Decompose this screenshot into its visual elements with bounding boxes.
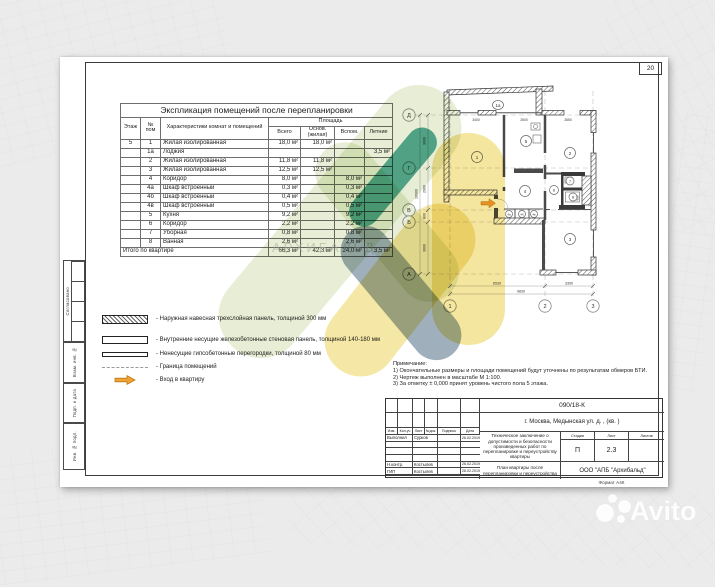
cell-aux bbox=[335, 148, 365, 157]
dimension-labels: 3600 2900 800 3600 10900 6530 3300 9830 … bbox=[415, 118, 574, 294]
cell-name: Кухня bbox=[161, 211, 269, 220]
cell-num: 4б bbox=[141, 193, 161, 202]
signature-row bbox=[386, 448, 480, 455]
cell-main: 18,0 м² bbox=[301, 139, 335, 148]
sig-name bbox=[413, 442, 438, 448]
table-row: 4 Коридор 8,0 м² 8,0 м² bbox=[121, 175, 393, 184]
legend-label: - Вход в квартиру bbox=[156, 377, 204, 383]
cell-total: 9,2 м² bbox=[269, 211, 301, 220]
avito-dot bbox=[617, 515, 625, 523]
svg-text:3400: 3400 bbox=[472, 118, 480, 122]
cell-aux: 9,2 м² bbox=[335, 211, 365, 220]
sig-role bbox=[386, 455, 413, 461]
tb-col-izm: Изм. bbox=[386, 428, 398, 435]
cell-num: 4 bbox=[141, 175, 161, 184]
cell-total: 18,0 м² bbox=[269, 139, 301, 148]
svg-text:6530: 6530 bbox=[493, 282, 501, 286]
cell-name: Шкаф встроенный bbox=[161, 202, 269, 211]
tb-drawing-title: План квартиры после перепланировки и пер… bbox=[480, 462, 561, 479]
legend-item-partition: - Ненесущие гипсобетонные перегородки, т… bbox=[100, 348, 321, 360]
cell-total: 12,5 м² bbox=[269, 166, 301, 175]
tb-stage-value: П bbox=[561, 440, 595, 462]
cell-floor bbox=[121, 175, 141, 184]
cell-total: 11,8 м² bbox=[269, 157, 301, 166]
cell-num: 5 bbox=[141, 211, 161, 220]
cell-name: Шкаф встроенный bbox=[161, 184, 269, 193]
legend-label: - Внутренние несущие железобетонные стен… bbox=[156, 337, 380, 343]
stamp-approved-grid bbox=[71, 261, 84, 341]
sig-role: Н.контр. bbox=[386, 462, 413, 468]
note-line: 3) За отметку ± 0,000 принят уровень чис… bbox=[393, 381, 657, 388]
signature-rows: Выполнил Сурков 26.02.2019 bbox=[386, 435, 480, 475]
cell-aux: 2,6 м² bbox=[335, 238, 365, 247]
cell-aux: 0,8 м² bbox=[335, 229, 365, 238]
table-row: 5 1 Жилая изолированная 18,0 м² 18,0 м² bbox=[121, 139, 393, 148]
sig-role: ГИП bbox=[386, 468, 413, 474]
bearing-walls bbox=[494, 115, 585, 270]
sig-role bbox=[386, 442, 413, 448]
cell-total bbox=[269, 148, 301, 157]
table-row: 1а Лоджия 3,5 м² bbox=[121, 148, 393, 157]
sig-date bbox=[461, 442, 480, 448]
svg-text:А: А bbox=[407, 272, 411, 278]
cell-main bbox=[301, 184, 335, 193]
total-main: 42,3 м² bbox=[301, 247, 335, 256]
legend-item-bearing-panel: - Внутренние несущие железобетонные стен… bbox=[100, 334, 380, 346]
avito-logo: Avito bbox=[596, 492, 715, 537]
svg-text:4б: 4б bbox=[520, 212, 524, 216]
tb-sheet-label: Лист bbox=[595, 432, 629, 440]
notes: Примечание: 1) Окончательные размеры и п… bbox=[393, 361, 657, 388]
cell-main bbox=[301, 193, 335, 202]
stamp-approved: Согласовано bbox=[63, 260, 85, 342]
cell-main bbox=[301, 220, 335, 229]
svg-text:9830: 9830 bbox=[517, 290, 525, 294]
legend-label: - Ненесущие гипсобетонные перегородки, т… bbox=[156, 351, 321, 357]
stamp-vzam: Взам. инв. № bbox=[63, 342, 85, 383]
cell-num: 7 bbox=[141, 229, 161, 238]
cell-floor bbox=[121, 220, 141, 229]
tb-doc-code: 090/18-К bbox=[480, 399, 664, 413]
sig-signature bbox=[438, 455, 461, 461]
cell-main bbox=[301, 238, 335, 247]
svg-text:Б: Б bbox=[407, 220, 411, 226]
cell-aux: 8,0 м² bbox=[335, 175, 365, 184]
table-row: 2 Жилая изолированная 11,8 м² 11,8 м² bbox=[121, 157, 393, 166]
cell-num: 1а bbox=[141, 148, 161, 157]
cell-name: Коридор bbox=[161, 175, 269, 184]
total-aux: 24,0 м² bbox=[335, 247, 365, 256]
tb-sheets-label: Листов bbox=[629, 432, 664, 440]
avito-dot bbox=[618, 500, 631, 513]
sig-signature bbox=[438, 448, 461, 454]
col-main: Основ. (жилая) bbox=[301, 127, 335, 140]
table-total-row: Итого по квартире 66,3 м² 42,3 м² 24,0 м… bbox=[121, 247, 393, 256]
sig-date bbox=[461, 455, 480, 461]
cell-total: 0,3 м² bbox=[269, 184, 301, 193]
col-room-no: № пом bbox=[141, 118, 161, 140]
total-label: Итого по квартире bbox=[121, 247, 269, 256]
tb-col-date: Дата bbox=[461, 428, 480, 435]
cell-name: Уборная bbox=[161, 229, 269, 238]
stamp-podp: Подп. и дата bbox=[63, 383, 85, 423]
legend-item-boundary: - Граница помещений bbox=[100, 361, 217, 373]
explication-title: Экспликация помещений после перепланиров… bbox=[121, 104, 393, 118]
format-note: Формат А4К bbox=[560, 480, 663, 485]
cell-total: 0,8 м² bbox=[269, 229, 301, 238]
tb-col-list: Лист bbox=[413, 428, 425, 435]
cell-aux: 0,4 м² bbox=[335, 193, 365, 202]
total-total: 66,3 м² bbox=[269, 247, 301, 256]
svg-text:8: 8 bbox=[572, 196, 574, 200]
cell-num: 8 bbox=[141, 238, 161, 247]
cell-total: 0,5 м² bbox=[269, 202, 301, 211]
table-row: 5 Кухня 9,2 м² 9,2 м² bbox=[121, 211, 393, 220]
sig-role: Выполнил bbox=[386, 435, 413, 441]
table-row: 7 Уборная 0,8 м² 0,8 м² bbox=[121, 229, 393, 238]
stamp-inv: Инв. № подл. bbox=[63, 423, 85, 470]
cell-num: 4в bbox=[141, 202, 161, 211]
cell-name: Лоджия bbox=[161, 148, 269, 157]
stamp-vzam-label: Взам. инв. № bbox=[72, 347, 77, 377]
sig-date: 26.02.2019 bbox=[461, 435, 480, 441]
avito-dot bbox=[608, 494, 617, 503]
sig-date: 26.02.2019 bbox=[461, 462, 480, 468]
sig-name bbox=[413, 455, 438, 461]
sig-date: 26.02.2019 bbox=[461, 468, 480, 474]
svg-text:10900: 10900 bbox=[415, 189, 419, 199]
table-row: 4в Шкаф встроенный 0,5 м² 0,5 м² bbox=[121, 202, 393, 211]
tb-doc-title: Техническое заключение о допустимости и … bbox=[480, 432, 561, 462]
cell-name: Ванная bbox=[161, 238, 269, 247]
svg-text:Г: Г bbox=[408, 166, 411, 172]
legend-label: - Граница помещений bbox=[156, 364, 217, 370]
sig-name: Костылев bbox=[413, 462, 438, 468]
page-number-box: 20 bbox=[639, 62, 662, 75]
svg-text:2600: 2600 bbox=[520, 118, 528, 122]
cell-floor bbox=[121, 211, 141, 220]
cell-floor: 5 bbox=[121, 139, 141, 148]
sig-date bbox=[461, 448, 480, 454]
tb-col-koluch: Кол.уч bbox=[398, 428, 413, 435]
svg-text:4а: 4а bbox=[507, 212, 511, 216]
cell-aux: 0,3 м² bbox=[335, 184, 365, 193]
cell-main bbox=[301, 202, 335, 211]
svg-text:3600: 3600 bbox=[423, 137, 427, 145]
dashed-line-swatch bbox=[100, 367, 150, 368]
entrance-arrow-icon bbox=[100, 375, 150, 385]
svg-text:7: 7 bbox=[569, 180, 571, 184]
sig-name bbox=[413, 448, 438, 454]
table-row: 4б Шкаф встроенный 0,4 м² 0,4 м² bbox=[121, 193, 393, 202]
cell-name: Шкаф встроенный bbox=[161, 193, 269, 202]
legend-label: - Наружная навесная трехслойная панель, … bbox=[156, 316, 326, 322]
legend-item-outer-panel: - Наружная навесная трехслойная панель, … bbox=[100, 313, 326, 325]
note-line: 2) Чертеж выполнен в масштабе М 1:100. bbox=[393, 375, 657, 382]
sig-signature bbox=[438, 468, 461, 474]
cell-aux: 2,2 м² bbox=[335, 220, 365, 229]
tb-stage-label: Стадия bbox=[561, 432, 595, 440]
drawing-sheet: 20 Согласовано Взам. инв. № Подп. и дата… bbox=[60, 57, 668, 487]
tb-sheet-value: 2.3 bbox=[595, 440, 629, 462]
sig-role bbox=[386, 448, 413, 454]
sig-name: Сурков bbox=[413, 435, 438, 441]
svg-text:800: 800 bbox=[423, 213, 427, 219]
cell-aux bbox=[335, 139, 365, 148]
signature-row bbox=[386, 442, 480, 449]
sig-signature bbox=[438, 435, 461, 441]
signature-row: Выполнил Сурков 26.02.2019 bbox=[386, 435, 480, 442]
hatched-wall-swatch bbox=[100, 315, 150, 324]
cell-num: 4а bbox=[141, 184, 161, 193]
col-desc: Характеристики комнат и помещений bbox=[161, 118, 269, 140]
signature-row bbox=[386, 455, 480, 462]
explication-rows: 5 1 Жилая изолированная 18,0 м² 18,0 м² … bbox=[121, 139, 393, 247]
cell-floor bbox=[121, 157, 141, 166]
cell-name: Жилая изолированная bbox=[161, 166, 269, 175]
stamp-podp-label: Подп. и дата bbox=[72, 389, 77, 417]
col-total: Всего bbox=[269, 127, 301, 140]
svg-text:4в: 4в bbox=[532, 212, 536, 216]
cell-main: 12,5 м² bbox=[301, 166, 335, 175]
legend-item-entrance: - Вход в квартиру bbox=[100, 374, 204, 386]
svg-text:2900: 2900 bbox=[423, 185, 427, 193]
sig-name: Костылев bbox=[413, 468, 438, 474]
svg-text:1а: 1а bbox=[495, 103, 501, 108]
sig-signature bbox=[438, 462, 461, 468]
floor-plan: 3600 2900 800 3600 10900 6530 3300 9830 … bbox=[382, 79, 664, 321]
cell-name: Жилая изолированная bbox=[161, 157, 269, 166]
cell-num: 6 bbox=[141, 220, 161, 229]
notes-title: Примечание: bbox=[393, 361, 657, 368]
stamp-approved-label: Согласовано bbox=[65, 287, 70, 315]
note-line: 1) Окончательные размеры и площади помещ… bbox=[393, 368, 657, 375]
title-block: Изм. Кол.уч Лист №док. Подпись Дата Выпо… bbox=[385, 398, 663, 478]
cell-main: 11,8 м² bbox=[301, 157, 335, 166]
col-floor: Этаж bbox=[121, 118, 141, 140]
tb-col-sign: Подпись bbox=[438, 428, 461, 435]
table-row: 6 Коридор 2,2 м² 2,2 м² bbox=[121, 220, 393, 229]
cell-num: 1 bbox=[141, 139, 161, 148]
svg-text:3: 3 bbox=[591, 304, 594, 310]
cell-aux: 0,5 м² bbox=[335, 202, 365, 211]
cell-main bbox=[301, 148, 335, 157]
sig-signature bbox=[438, 442, 461, 448]
avito-wordmark: Avito bbox=[630, 496, 697, 527]
svg-text:3300: 3300 bbox=[565, 282, 573, 286]
cell-total: 0,4 м² bbox=[269, 193, 301, 202]
cell-floor bbox=[121, 193, 141, 202]
stamp-inv-label: Инв. № подл. bbox=[72, 431, 77, 461]
svg-text:Д: Д bbox=[407, 113, 411, 119]
col-area: Площадь bbox=[269, 118, 393, 127]
solid-wall-swatch bbox=[100, 336, 150, 344]
cell-name: Жилая изолированная bbox=[161, 139, 269, 148]
thin-wall-swatch bbox=[100, 352, 150, 357]
cell-floor bbox=[121, 229, 141, 238]
tb-company: ООО "АПБ "Архибальд" bbox=[561, 462, 664, 479]
cell-name: Коридор bbox=[161, 220, 269, 229]
cell-total: 2,6 м² bbox=[269, 238, 301, 247]
explication-table: Экспликация помещений после перепланиров… bbox=[120, 103, 393, 257]
svg-text:1: 1 bbox=[448, 304, 451, 310]
cell-num: 3 bbox=[141, 166, 161, 175]
col-aux: Вспом. bbox=[335, 127, 365, 140]
tb-sheets-value bbox=[629, 440, 664, 462]
cell-main bbox=[301, 175, 335, 184]
cell-floor bbox=[121, 148, 141, 157]
signature-row: ГИП Костылев 26.02.2019 bbox=[386, 468, 480, 475]
tb-address: г. Москва, Медынская ул. д. , (кв. ) bbox=[480, 413, 664, 432]
table-row: 8 Ванная 2,6 м² 2,6 м² bbox=[121, 238, 393, 247]
cell-floor bbox=[121, 238, 141, 247]
cell-aux bbox=[335, 157, 365, 166]
avito-dot bbox=[596, 504, 614, 522]
tb-col-dok: №док. bbox=[425, 428, 438, 435]
cell-main bbox=[301, 211, 335, 220]
cell-total: 8,0 м² bbox=[269, 175, 301, 184]
cell-num: 2 bbox=[141, 157, 161, 166]
table-row: 4а Шкаф встроенный 0,3 м² 0,3 м² bbox=[121, 184, 393, 193]
cell-total: 2,2 м² bbox=[269, 220, 301, 229]
table-row: 3 Жилая изолированная 12,5 м² 12,5 м² bbox=[121, 166, 393, 175]
cell-aux bbox=[335, 166, 365, 175]
cell-main bbox=[301, 229, 335, 238]
cell-floor bbox=[121, 166, 141, 175]
signature-row: Н.контр. Костылев 26.02.2019 bbox=[386, 462, 480, 469]
svg-text:2650: 2650 bbox=[564, 118, 572, 122]
entrance-arrow-icon bbox=[481, 199, 496, 208]
cell-floor bbox=[121, 202, 141, 211]
page-number: 20 bbox=[647, 65, 654, 72]
cell-floor bbox=[121, 184, 141, 193]
svg-text:2: 2 bbox=[543, 304, 546, 310]
svg-text:В: В bbox=[407, 208, 411, 214]
svg-text:3600: 3600 bbox=[423, 244, 427, 252]
